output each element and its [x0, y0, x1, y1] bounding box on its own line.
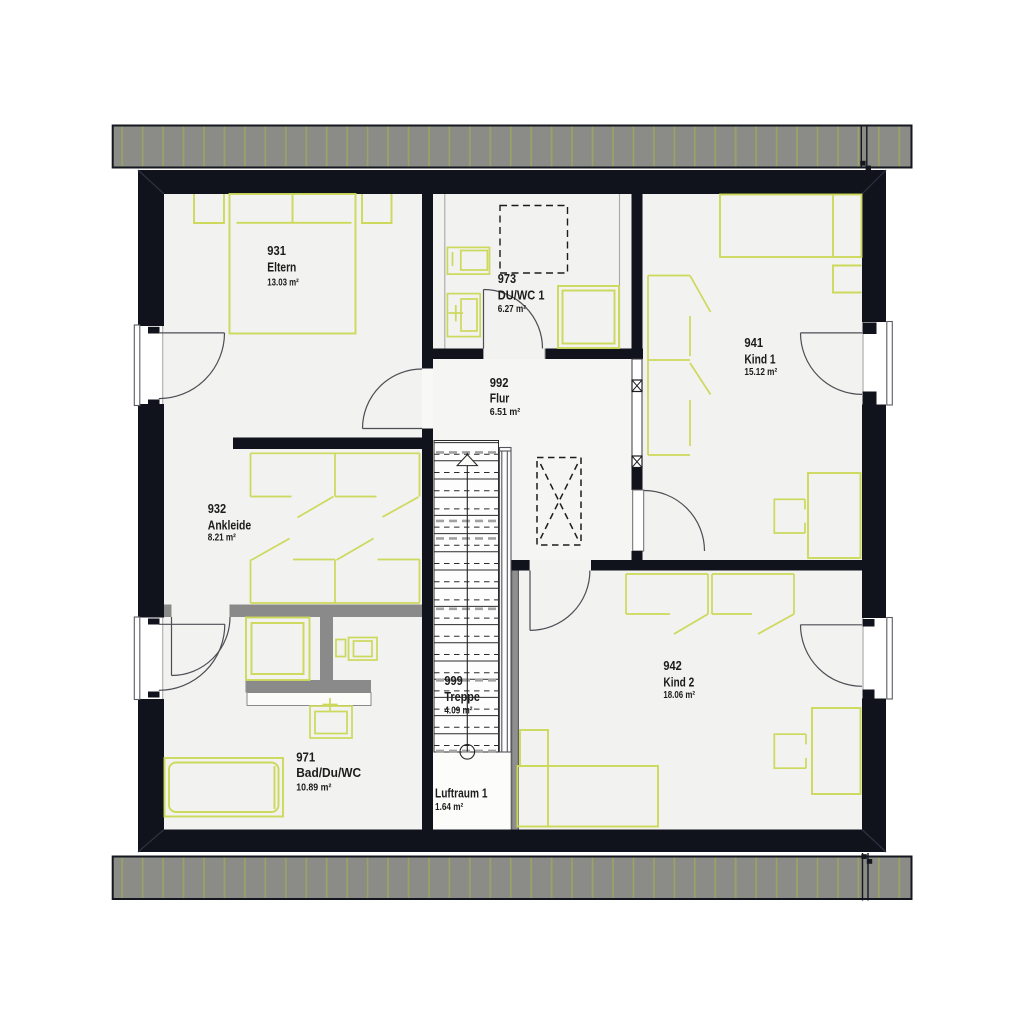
- svg-text:18.06 m²: 18.06 m²: [663, 690, 695, 701]
- svg-text:15.12 m²: 15.12 m²: [744, 367, 777, 378]
- svg-text:932: 932: [208, 501, 226, 516]
- svg-text:973: 973: [498, 271, 516, 286]
- svg-text:13.03 m²: 13.03 m²: [267, 278, 299, 289]
- svg-text:992: 992: [490, 375, 509, 390]
- svg-text:Luftraum 1: Luftraum 1: [435, 786, 488, 801]
- svg-text:Kind 2: Kind 2: [663, 675, 694, 690]
- svg-text:941: 941: [744, 335, 763, 350]
- svg-text:10.89 m²: 10.89 m²: [296, 782, 332, 793]
- svg-text:8.21 m²: 8.21 m²: [208, 533, 237, 544]
- svg-text:6.27 m²: 6.27 m²: [498, 304, 527, 315]
- svg-text:999: 999: [444, 673, 462, 688]
- svg-text:Flur: Flur: [490, 390, 510, 405]
- svg-text:Eltern: Eltern: [267, 260, 296, 275]
- svg-text:4.09 m²: 4.09 m²: [444, 706, 473, 717]
- svg-text:Kind 1: Kind 1: [744, 352, 775, 367]
- svg-text:1.64 m²: 1.64 m²: [435, 802, 464, 813]
- svg-text:971: 971: [296, 749, 315, 764]
- svg-text:Bad/Du/WC: Bad/Du/WC: [296, 765, 362, 780]
- svg-text:931: 931: [267, 243, 286, 258]
- svg-text:Ankleide: Ankleide: [208, 517, 251, 532]
- svg-text:6.51 m²: 6.51 m²: [490, 407, 521, 418]
- svg-text:Treppe: Treppe: [444, 689, 480, 704]
- svg-text:942: 942: [663, 658, 681, 673]
- svg-text:DU/WC 1: DU/WC 1: [498, 287, 545, 302]
